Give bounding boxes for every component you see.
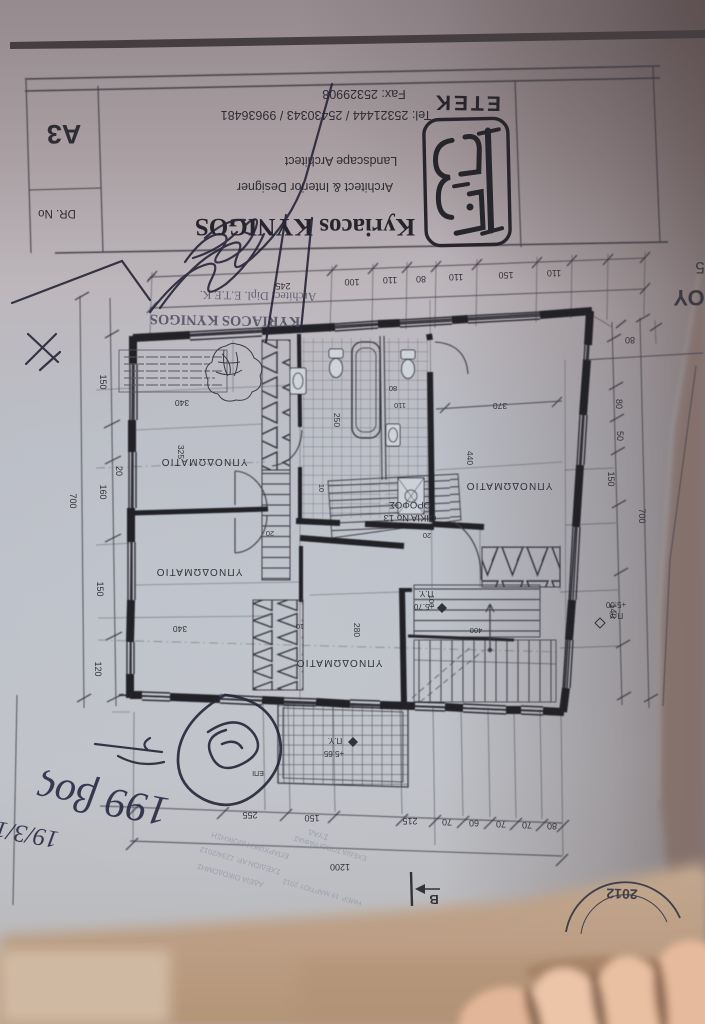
svg-text:+5.65: +5.65 (323, 749, 344, 758)
svg-text:Fax: 25329908: Fax: 25329908 (322, 87, 405, 101)
svg-text:250: 250 (332, 413, 342, 427)
svg-text:80: 80 (614, 399, 624, 409)
svg-text:150: 150 (98, 374, 108, 389)
svg-text:+5.70: +5.70 (413, 602, 434, 611)
svg-text:100: 100 (344, 277, 359, 287)
svg-text:KYRIACOS KYNIGOS: KYRIACOS KYNIGOS (150, 311, 301, 330)
svg-text:80: 80 (416, 274, 426, 284)
svg-text:340: 340 (175, 398, 189, 408)
svg-text:700: 700 (637, 508, 647, 523)
svg-text:Π.Υ.: Π.Υ. (328, 736, 343, 745)
svg-text:110: 110 (394, 401, 406, 410)
svg-text:80: 80 (625, 335, 635, 345)
svg-text:ΥΠΝΟΔΩΜΑΤΙΟ: ΥΠΝΟΔΩΜΑΤΙΟ (156, 566, 243, 577)
svg-text:150: 150 (606, 471, 616, 486)
svg-text:50: 50 (615, 431, 625, 441)
svg-text:Π.Υ.: Π.Υ. (419, 589, 434, 598)
svg-text:ΕΠΙ: ΕΠΙ (252, 769, 264, 776)
svg-text:60: 60 (469, 818, 479, 828)
svg-text:5: 5 (695, 258, 704, 277)
svg-text:Architect & Interior Designer: Architect & Interior Designer (237, 180, 393, 194)
svg-text:ΟΙΚΙΑ Νο 13: ΟΙΚΙΑ Νο 13 (384, 512, 437, 523)
svg-text:400: 400 (470, 626, 483, 635)
svg-text:ETEK: ETEK (433, 90, 501, 114)
svg-text:2012: 2012 (606, 885, 638, 902)
svg-text:20: 20 (423, 531, 431, 540)
svg-text:ΥΠΝΟΔΩΜΑΤΙΟ: ΥΠΝΟΔΩΜΑΤΙΟ (466, 480, 553, 491)
svg-text:700: 700 (68, 493, 78, 508)
svg-text:Kyriacos KYNIGOS: Kyriacos KYNIGOS (195, 213, 415, 240)
svg-text:20: 20 (114, 466, 124, 476)
svg-text:Π.Υ.: Π.Υ. (609, 611, 624, 620)
svg-text:70: 70 (442, 817, 452, 827)
svg-text:255: 255 (242, 810, 257, 820)
svg-text:150: 150 (498, 270, 513, 280)
svg-text:110: 110 (547, 268, 561, 278)
svg-text:70: 70 (496, 819, 506, 829)
svg-text:ΟΡΟΦΟΣ: ΟΡΟΦΟΣ (389, 499, 431, 510)
svg-text:370: 370 (493, 401, 507, 411)
svg-text:Landscape Architect: Landscape Architect (284, 154, 397, 168)
svg-text:325: 325 (176, 445, 186, 459)
svg-text:110: 110 (383, 275, 397, 285)
svg-text:215: 215 (402, 816, 417, 826)
svg-text:70: 70 (522, 820, 532, 830)
svg-text:110: 110 (449, 272, 463, 282)
svg-text:10: 10 (296, 622, 304, 631)
svg-text:150: 150 (95, 581, 105, 596)
svg-text:1200: 1200 (330, 862, 350, 872)
svg-text:A3: A3 (47, 119, 82, 149)
svg-text:B: B (429, 892, 438, 907)
svg-text:80: 80 (547, 821, 557, 831)
svg-text:DR. No: DR. No (38, 207, 76, 219)
svg-text:440: 440 (465, 451, 475, 465)
svg-text:340: 340 (173, 624, 187, 634)
svg-text:ΥΠΝΟΔΩΜΑΤΙΟ: ΥΠΝΟΔΩΜΑΤΙΟ (161, 456, 248, 467)
svg-text:Tel: 25321444 / 25430343 / 996: Tel: 25321444 / 25430343 / 99636481 (221, 108, 432, 122)
svg-text:120: 120 (93, 661, 103, 676)
svg-text:20: 20 (266, 529, 274, 538)
svg-text:ΥΠΝΟΔΩΜΑΤΙΟ: ΥΠΝΟΔΩΜΑΤΙΟ (296, 657, 383, 668)
svg-text:+5.00: +5.00 (605, 600, 626, 609)
svg-text:80: 80 (389, 384, 397, 393)
svg-text:10: 10 (317, 484, 326, 492)
svg-text:150: 150 (304, 813, 319, 823)
svg-text:ΟΥ: ΟΥ (673, 285, 705, 310)
svg-text:280: 280 (352, 623, 362, 637)
svg-text:160: 160 (98, 484, 108, 499)
